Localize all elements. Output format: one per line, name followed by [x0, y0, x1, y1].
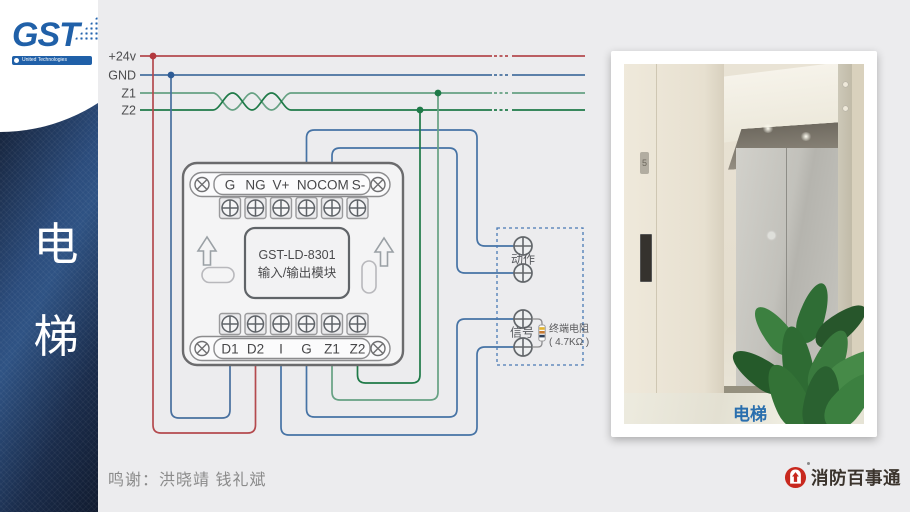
- photo-left-wall: [624, 64, 724, 394]
- mount-hole-bottom-left: [195, 342, 209, 356]
- bottom-terminal-label-d1: D1: [221, 342, 238, 357]
- screw-terminal: [271, 314, 292, 335]
- screw-terminal: [322, 314, 343, 335]
- module-title: GST-LD-8301: [258, 248, 335, 262]
- screw-terminal: [271, 198, 292, 219]
- bus-label-z2: Z2: [121, 104, 136, 118]
- bus-labels: +24v GND Z1 Z2: [108, 50, 137, 118]
- bottom-terminal-label-i: I: [279, 342, 283, 357]
- module-subtitle: 输入/输出模块: [258, 265, 337, 280]
- fire-brand-icon: [784, 466, 807, 489]
- photo-door-indicator: [768, 232, 775, 239]
- photo-call-button: [843, 106, 848, 111]
- screw-terminal: [347, 198, 368, 219]
- screw-terminal: [322, 198, 343, 219]
- mount-hole-bottom-right: [371, 342, 385, 356]
- external-device-box: 动作 信号 终端电阻: [497, 228, 589, 365]
- top-terminal-label-no: NO: [297, 178, 317, 193]
- junction-24v: [150, 53, 157, 60]
- junction-z2: [417, 107, 424, 114]
- module-gst-ld-8301: G NG V+ NO COM S- GST-LD-8301 输入/输出模块: [183, 163, 403, 365]
- screw-terminal: [220, 198, 241, 219]
- photo-hall-panel: [640, 234, 652, 282]
- bottom-terminal-label-z1: Z1: [324, 342, 340, 357]
- brand-logo: 消防百事通: [784, 464, 901, 490]
- junction-z1: [435, 90, 442, 97]
- resistor-value: ( 4.7KΩ ): [549, 337, 589, 348]
- elevator-photo: 5 电梯: [624, 64, 864, 424]
- top-terminal-label-sminus: S-: [352, 178, 366, 193]
- photo-ceiling-light: [762, 124, 774, 133]
- bottom-terminal-label-d2: D2: [247, 342, 264, 357]
- photo-call-button: [843, 82, 848, 87]
- top-terminal-label-ng: NG: [245, 178, 265, 193]
- module-top-strip: G NG V+ NO COM S-: [190, 173, 390, 197]
- resistor-name: 终端电阻: [549, 322, 589, 335]
- bottom-terminal-label-g: G: [301, 342, 312, 357]
- photo-ceiling-light: [800, 132, 812, 141]
- bus-label-gnd: GND: [108, 69, 136, 83]
- screw-terminal: [245, 314, 266, 335]
- bus-label-24v: +24v: [109, 50, 137, 64]
- junction-gnd: [168, 72, 175, 79]
- bus-lines: [140, 56, 585, 110]
- signal-terminal-bottom: [514, 338, 532, 356]
- module-bottom-strip: D1 D2 I G Z1 Z2: [190, 337, 390, 361]
- screw-terminal: [296, 314, 317, 335]
- photo-card: 5 电梯: [611, 51, 877, 437]
- bus-line-z1: [140, 93, 585, 110]
- bottom-terminal-label-z2: Z2: [350, 342, 366, 357]
- brand-name: 消防百事通: [811, 465, 901, 490]
- screw-terminal: [220, 314, 241, 335]
- top-terminal-label-g: G: [225, 178, 236, 193]
- mount-hole-top-right: [371, 178, 385, 192]
- screw-terminal: [296, 198, 317, 219]
- action-terminal-bottom: [514, 264, 532, 282]
- mount-hole-top-left: [195, 178, 209, 192]
- screw-terminal: [347, 314, 368, 335]
- credits-text: 鸣谢：洪晓靖 钱礼斌: [108, 466, 266, 490]
- page: GST United Technologies 电 梯 +24v GND Z1 …: [0, 0, 910, 512]
- module-center-label: GST-LD-8301 输入/输出模块: [245, 228, 349, 298]
- photo-caption: 电梯: [720, 400, 780, 424]
- photo-floor-sign: 5: [640, 152, 649, 174]
- bus-line-z2: [140, 93, 585, 110]
- junction-dots: [150, 53, 442, 114]
- screw-terminal: [245, 198, 266, 219]
- top-terminal-label-com: COM: [317, 178, 349, 193]
- bus-label-z1: Z1: [121, 87, 136, 101]
- trademark-dot: [807, 462, 810, 465]
- photo-wall-seam: [656, 64, 657, 394]
- top-terminal-label-vplus: V+: [273, 178, 290, 193]
